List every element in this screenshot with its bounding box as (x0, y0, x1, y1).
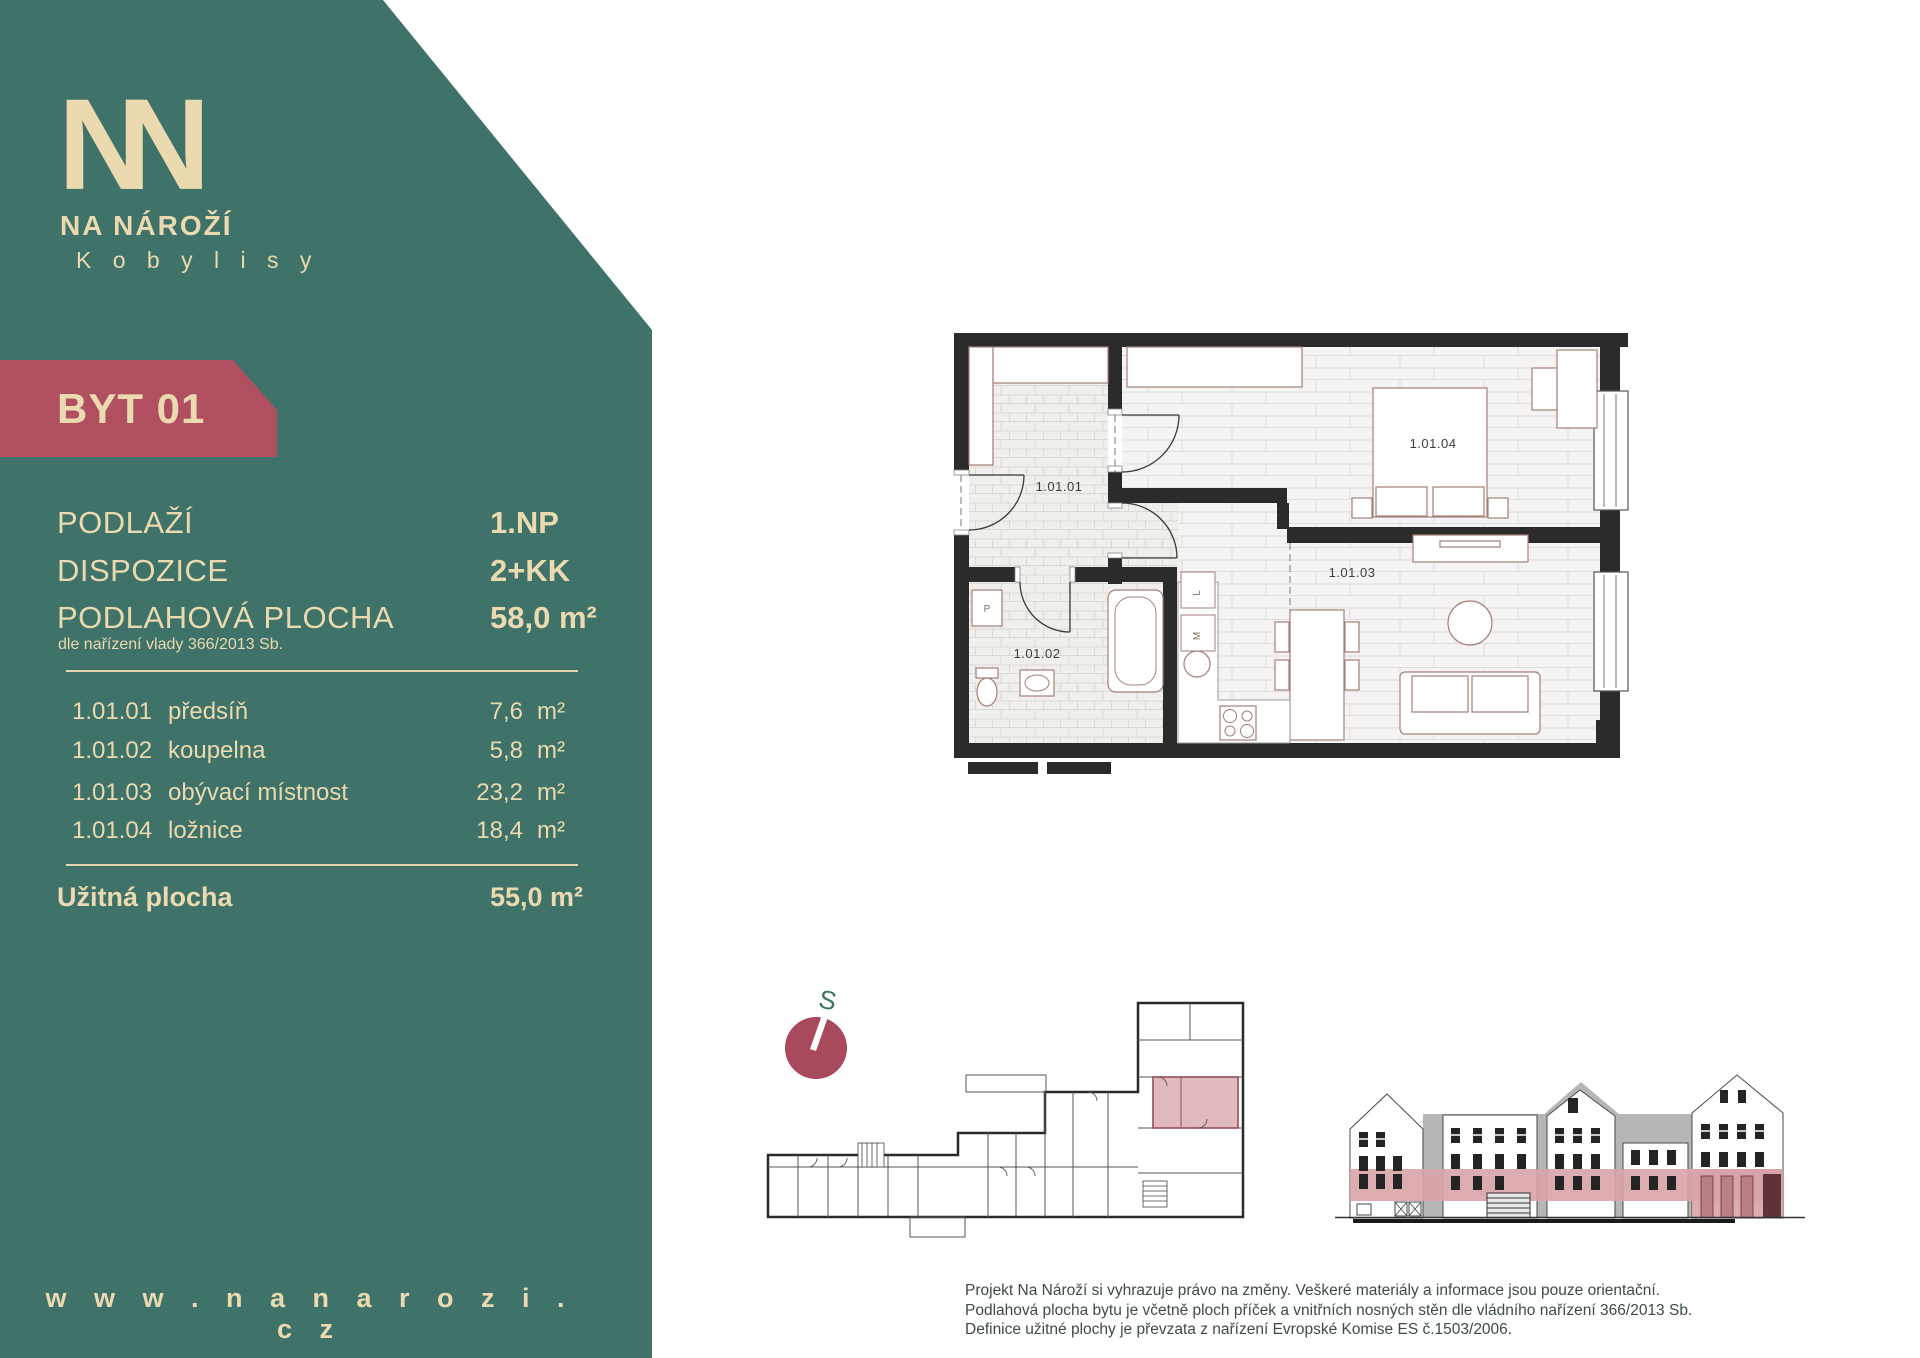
room-unit: m² (537, 737, 565, 765)
room-code: 1.01.01 (72, 698, 152, 726)
highlighted-unit (1153, 1077, 1238, 1128)
info-value-floor: 1.NP (490, 505, 559, 541)
room-code: 1.01.02 (72, 737, 152, 765)
plan-label-living: 1.01.03 (1329, 565, 1376, 580)
room-name: koupelna (168, 737, 265, 765)
entrance-awning (1487, 1193, 1530, 1218)
room-unit: m² (537, 817, 565, 845)
total-value: 55,0 m² (490, 882, 583, 913)
info-label-floor: PODLAŽÍ (57, 505, 193, 541)
room-unit: m² (537, 779, 565, 807)
room-code: 1.01.03 (72, 779, 152, 807)
room-name: obývací místnost (168, 779, 348, 807)
bathtub (1108, 590, 1163, 692)
plan-label-bedroom: 1.01.04 (1410, 436, 1457, 451)
sink (1184, 651, 1210, 677)
dishwasher-label: M (1192, 632, 1203, 640)
room-area: 18,4 (423, 817, 523, 845)
info-value-layout: 2+KK (490, 553, 570, 589)
info-label-area: PODLAHOVÁ PLOCHA (57, 600, 394, 636)
disclaimer: Projekt Na Nároží si vyhrazuje právo na … (965, 1281, 1755, 1340)
info-note: dle nařízení vlady 366/2013 Sb. (58, 636, 283, 654)
brand-subtitle: K o b y l i s y (76, 247, 319, 274)
plan-label-bath: 1.01.02 (1014, 646, 1061, 661)
round-table (1448, 601, 1492, 645)
room-area: 23,2 (423, 779, 523, 807)
room-area: 7,6 (423, 698, 523, 726)
site-plan (758, 995, 1303, 1265)
unit-badge-label: BYT 01 (57, 360, 205, 457)
dining-table (1290, 610, 1344, 740)
website-link[interactable]: w w w . n a n a r o z i . c z (40, 1283, 580, 1345)
room-area: 5,8 (423, 737, 523, 765)
room-unit: m² (537, 698, 565, 726)
info-value-area: 58,0 m² (490, 600, 597, 636)
total-label: Užitná plocha (57, 882, 233, 913)
washer-label: P (984, 604, 991, 615)
logo-monogram-icon: N N (58, 78, 210, 204)
disclaimer-line: Definice užitné plochy je převzata z nař… (965, 1320, 1755, 1340)
toilet (976, 668, 998, 678)
room-name: ložnice (168, 817, 243, 845)
building-elevation (1335, 1066, 1820, 1281)
unit-badge: BYT 01 (0, 360, 277, 457)
sidebar: N N NA NÁROŽÍ K o b y l i s y BYT 01 POD… (0, 0, 652, 1358)
disclaimer-line: Projekt Na Nároží si vyhrazuje právo na … (965, 1281, 1755, 1301)
divider-top (66, 670, 578, 672)
brand-name: NA NÁROŽÍ (60, 210, 233, 242)
fridge-label: L (1192, 590, 1203, 596)
room-code: 1.01.04 (72, 817, 152, 845)
svg-text:N: N (117, 78, 210, 204)
disclaimer-line: Podlahová plocha bytu je včetně ploch př… (965, 1301, 1755, 1321)
plan-label-hall: 1.01.01 (1036, 479, 1083, 494)
floor-plan: 1.01.01 1.01.02 1.01.03 1.01.04 P L M (950, 260, 1690, 775)
tv-board (1413, 535, 1528, 562)
divider-bottom (66, 864, 578, 866)
info-label-layout: DISPOZICE (57, 553, 229, 589)
room-name: předsíň (168, 698, 248, 726)
